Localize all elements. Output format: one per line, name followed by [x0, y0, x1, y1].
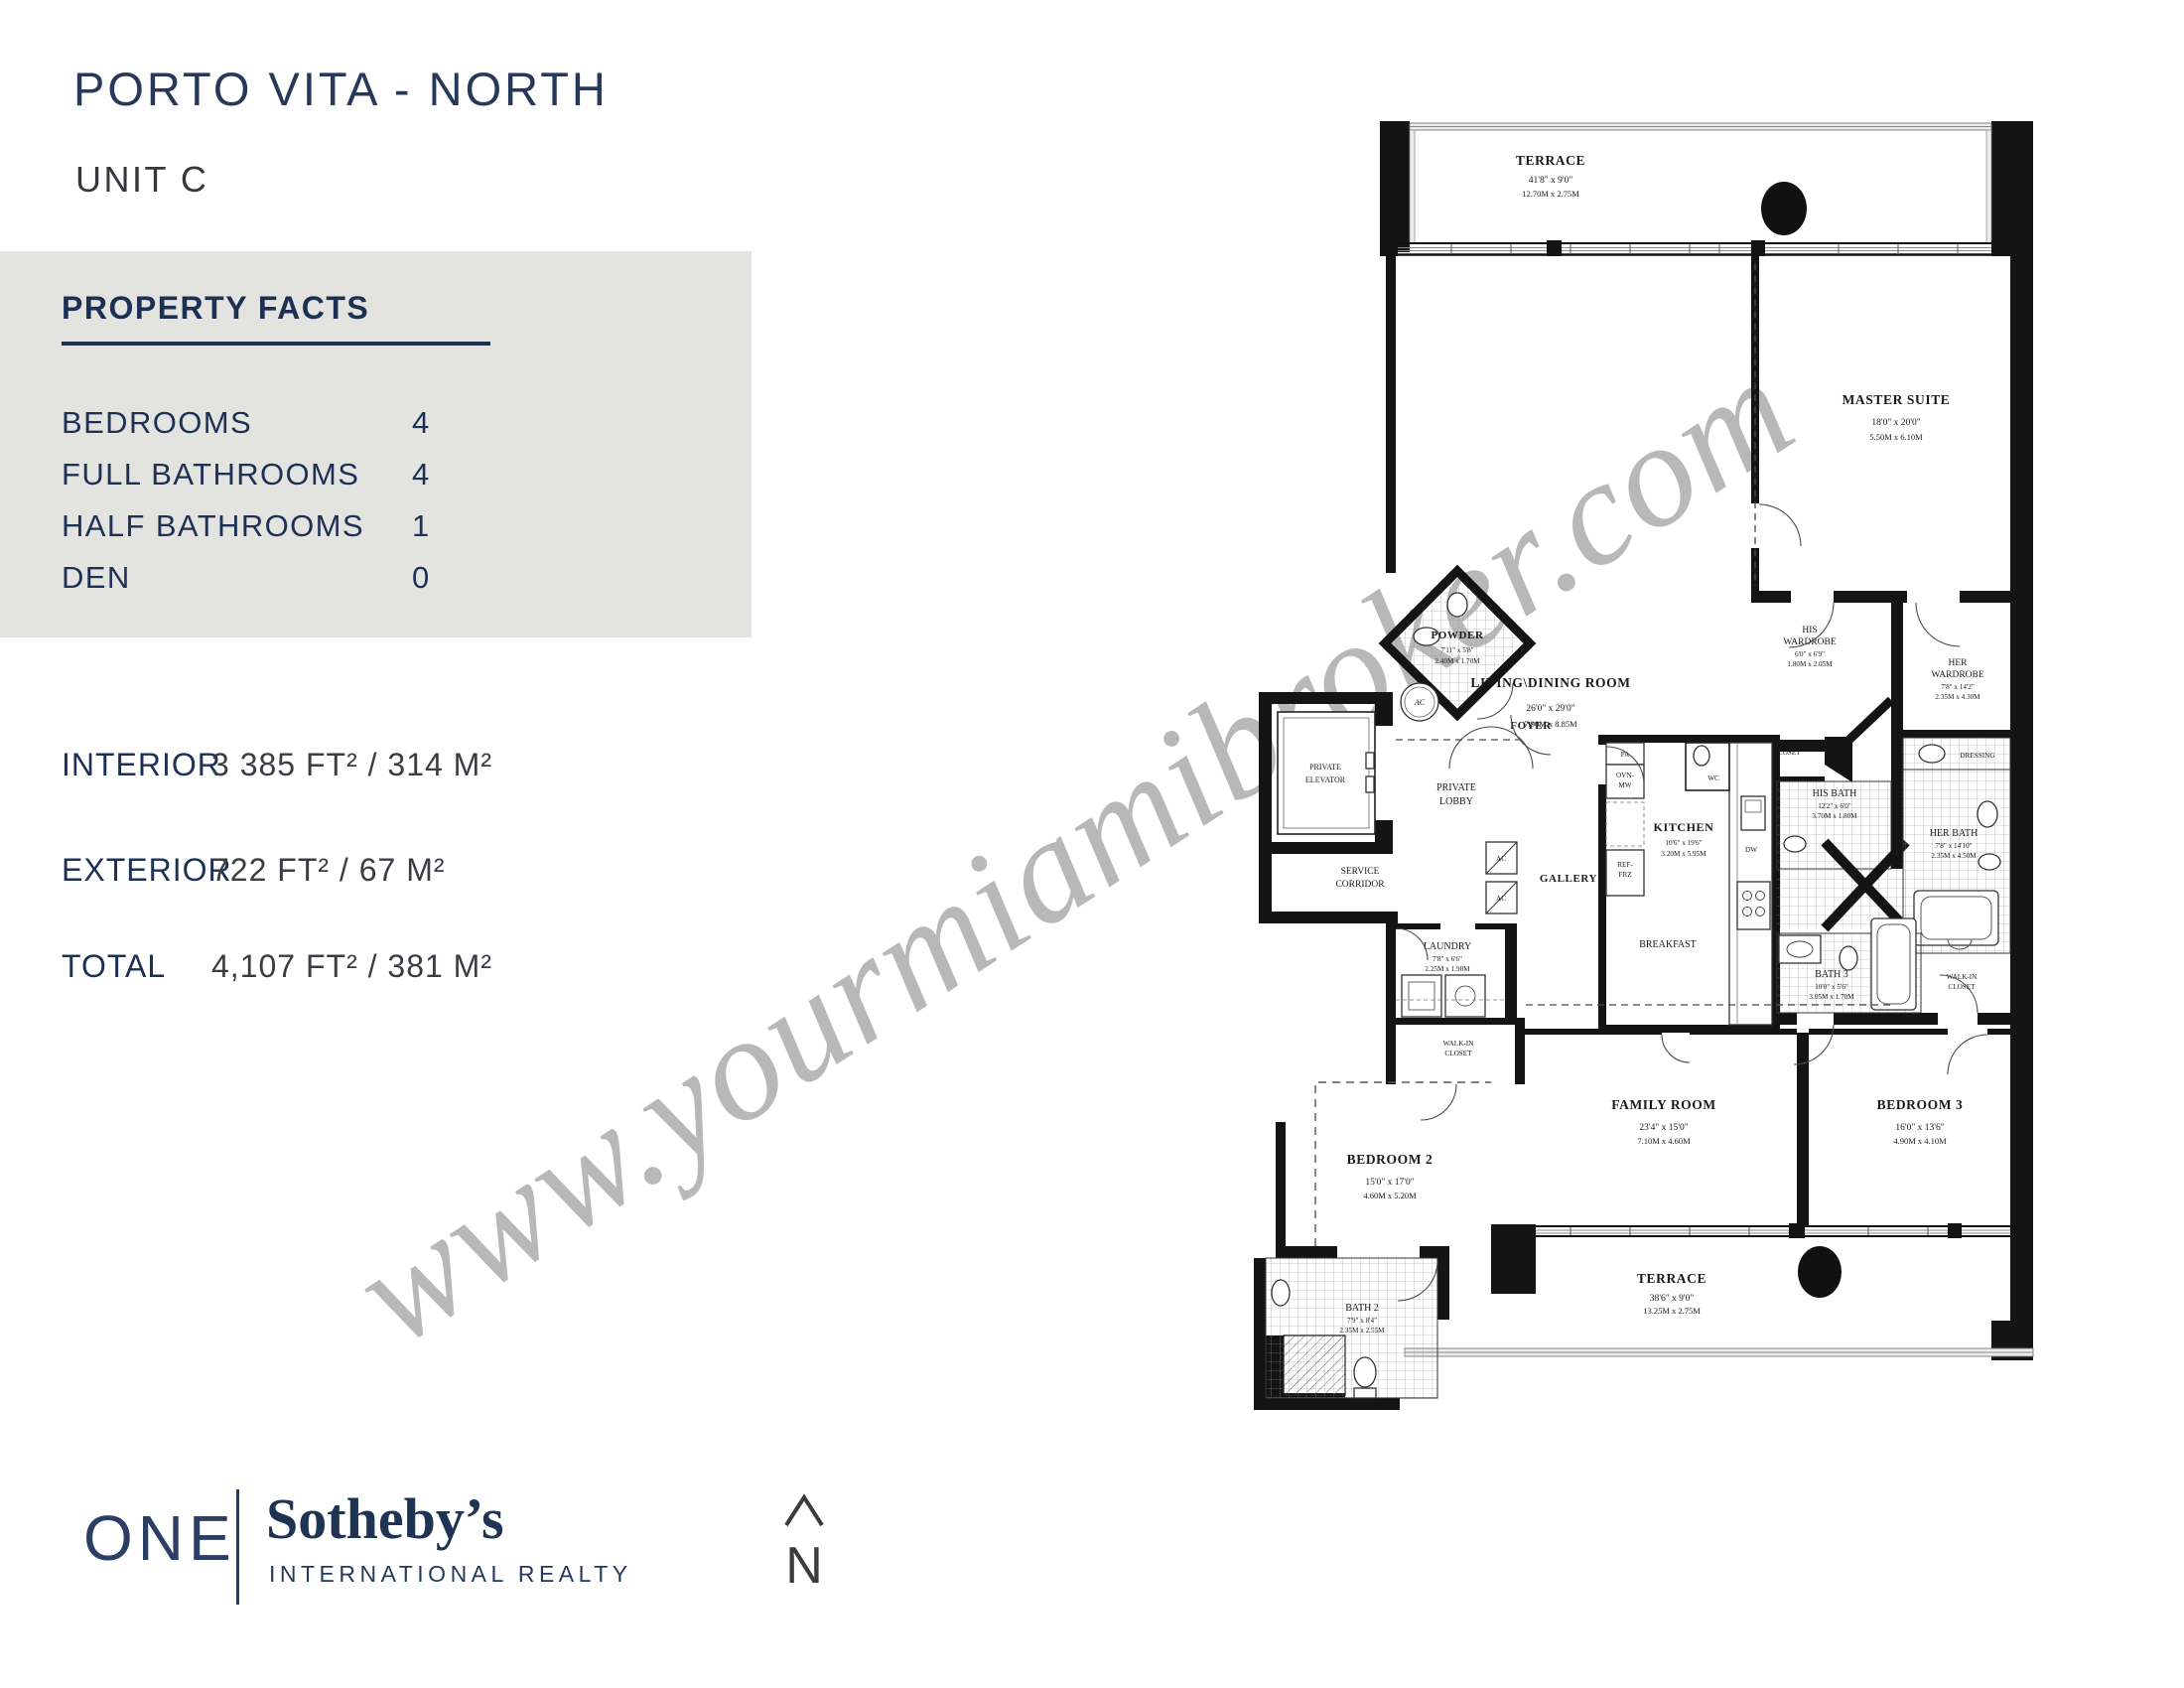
room-dims-ft: 38'6" x 9'0"	[1650, 1294, 1695, 1304]
ac-label: AC	[1414, 698, 1426, 707]
room-label-2: CLOSET	[1948, 983, 1976, 991]
room-dims-ft: 7'11" x 5'8"	[1440, 646, 1473, 654]
room-label: HER BATH	[1930, 828, 1979, 839]
area-label: EXTERIOR	[62, 852, 232, 888]
room-label: FAMILY ROOM	[1611, 1097, 1715, 1112]
dressing-strip: DRESSING	[1903, 738, 2010, 770]
sothebys-tagline: INTERNATIONAL REALTY	[269, 1561, 632, 1588]
room-dims-ft: 16'0" x 13'6"	[1895, 1123, 1944, 1133]
room-label-closet: CLOSET	[1773, 749, 1801, 757]
room-wc: WC	[1686, 743, 1729, 790]
area-row-exterior: EXTERIOR 722 FT² / 67 M²	[62, 852, 232, 889]
room-label-1: PRIVATE	[1309, 763, 1341, 772]
room-label: BATH 3	[1815, 969, 1848, 980]
fact-label: BEDROOMS	[62, 405, 252, 440]
room-dims-m: 2.35M x 4.50M	[1931, 852, 1977, 860]
room-dims-ft: 7'9" x 8'4"	[1347, 1317, 1377, 1325]
room-dims-m: 7.10M x 4.60M	[1637, 1136, 1691, 1146]
room-label: BEDROOM 2	[1347, 1152, 1433, 1167]
column	[1798, 1246, 1842, 1298]
window-band-bottom	[1536, 1223, 2010, 1238]
appliance-frz: FRZ	[1618, 871, 1631, 879]
area-value: 3 385 FT² / 314 M²	[211, 747, 492, 783]
room-label: LAUNDRY	[1424, 941, 1471, 952]
area-label: TOTAL	[62, 948, 166, 984]
room-label: POWDER	[1431, 630, 1484, 641]
room-label-gallery: GALLERY	[1540, 873, 1597, 885]
fact-value: 4	[412, 405, 431, 441]
room-bath-3: BATH 3 10'0" x 5'6" 3.05M x 1.70M	[1777, 918, 1921, 1013]
appliance-dw: DW	[1745, 846, 1757, 854]
room-laundry: LAUNDRY 7'8" x 6'6" 2.25M x 1.98M	[1396, 941, 1505, 1017]
room-dims-m: 13.25M x 2.75M	[1643, 1306, 1701, 1316]
room-dims-ft: 7'8" x 14'10"	[1935, 842, 1972, 850]
room-label-2: CLOSET	[1444, 1050, 1472, 1057]
room-walkin-closet-left: WALK-IN CLOSET	[1443, 1040, 1475, 1057]
room-dims-m: 2.35M x 2.55M	[1339, 1327, 1385, 1335]
room-dims-ft: 15'0" x 17'0"	[1365, 1178, 1414, 1188]
fact-row-half-bathrooms: HALF BATHROOMS 1	[62, 508, 617, 544]
fact-row-bedrooms: BEDROOMS 4	[62, 405, 617, 441]
area-row-interior: INTERIOR 3 385 FT² / 314 M²	[62, 747, 221, 783]
fact-label: DEN	[62, 560, 131, 595]
room-private-elevator: PRIVATE ELEVATOR	[1278, 712, 1375, 834]
one-logo-text: ONE	[83, 1501, 236, 1575]
column	[1761, 182, 1807, 235]
fact-value: 0	[412, 560, 431, 596]
room-label: TERRACE	[1637, 1271, 1706, 1286]
logo-divider	[236, 1489, 239, 1605]
north-arrow: N	[764, 1485, 844, 1605]
room-dims-m: 4.90M x 4.10M	[1893, 1136, 1947, 1146]
room-bedroom-3: BEDROOM 3 16'0" x 13'6" 4.90M x 4.10M	[1877, 1097, 1964, 1146]
room-dims-ft: 41'8" x 9'0"	[1529, 176, 1573, 186]
room-label-private-lobby-2: LOBBY	[1439, 796, 1473, 807]
room-dims-m: 3.20M x 5.95M	[1661, 850, 1706, 858]
north-letter: N	[785, 1537, 823, 1595]
sothebys-logo-text: Sotheby’s	[266, 1485, 504, 1552]
area-value: 722 FT² / 67 M²	[211, 852, 446, 889]
room-terrace-top: TERRACE 41'8" x 9'0" 12.70M x 2.75M	[1380, 121, 2033, 252]
area-row-total: TOTAL 4,107 FT² / 381 M²	[62, 948, 166, 985]
room-dims-ft: 18'0" x 20'0"	[1871, 418, 1920, 428]
room-label: BEDROOM 3	[1877, 1097, 1964, 1112]
room-label-2: WARDROBE	[1931, 670, 1984, 680]
room-dims-m: 7.90M x 8.85M	[1524, 719, 1577, 729]
page-title: PORTO VITA - NORTH	[73, 62, 609, 116]
appliance-ovn: OVN-	[1616, 772, 1635, 779]
ac-closets: AC AC	[1486, 842, 1517, 914]
floorplan-image: TERRACE 41'8" x 9'0" 12.70M x 2.75M	[1253, 119, 2037, 1440]
room-dims-ft: 26'0" x 29'0"	[1526, 704, 1574, 714]
room-dims-m: 4.60M x 5.20M	[1363, 1191, 1417, 1200]
room-bedroom-2: BEDROOM 2 15'0" x 17'0" 4.60M x 5.20M	[1315, 1082, 1491, 1246]
room-dims-ft: 12'2" x 6'0"	[1818, 802, 1851, 810]
room-dims-m: 3.70M x 1.80M	[1812, 812, 1857, 820]
room-label-2: ELEVATOR	[1305, 775, 1346, 784]
room-dims-m: 5.50M x 6.10M	[1869, 432, 1923, 442]
room-dims-ft: 7'8" x 6'6"	[1433, 955, 1462, 963]
fact-row-full-bathrooms: FULL BATHROOMS 4	[62, 457, 617, 492]
room-bath-2: BATH 2 7'9" x 8'4" 2.35M x 2.55M	[1266, 1258, 1437, 1398]
room-label: MASTER SUITE	[1843, 392, 1951, 407]
room-label-1: HER	[1949, 658, 1969, 668]
fact-value: 4	[412, 457, 431, 492]
fact-row-den: DEN 0	[62, 560, 617, 596]
property-facts-heading: PROPERTY FACTS	[62, 290, 369, 327]
room-dims-m: 2.35M x 4.30M	[1935, 693, 1980, 701]
room-dims-m: 3.05M x 1.70M	[1809, 993, 1854, 1001]
fact-label: HALF BATHROOMS	[62, 508, 364, 543]
room-dims-m: 2.25M x 1.98M	[1425, 965, 1470, 973]
north-chevron-icon	[786, 1497, 822, 1525]
room-label-dressing: DRESSING	[1960, 752, 1994, 760]
room-dims-m: 2.40M x 1.70M	[1434, 657, 1480, 665]
room-label-service-corridor-1: SERVICE	[1341, 867, 1380, 877]
room-label-breakfast: BREAKFAST	[1639, 939, 1697, 950]
room-dims-ft: 23'4" x 15'0"	[1639, 1123, 1688, 1133]
room-dims-ft: 6'0" x 6'9"	[1795, 650, 1825, 658]
room-label-service-corridor-2: CORRIDOR	[1335, 880, 1385, 890]
room-label: KITCHEN	[1654, 820, 1714, 834]
flyer-page: { "page": { "title": "PORTO VITA - NORTH…	[0, 0, 2184, 1688]
room-dims-ft: 10'6" x 19'6"	[1665, 839, 1702, 847]
room-dims-m: 12.70M x 2.75M	[1522, 189, 1579, 199]
appliance-ref: REF-	[1617, 861, 1633, 869]
room-label-private-lobby-1: PRIVATE	[1436, 782, 1476, 793]
room-label-1: WALK-IN	[1443, 1040, 1475, 1048]
area-label: INTERIOR	[62, 747, 221, 782]
appliance-mw: MW	[1618, 781, 1631, 789]
room-her-wardrobe: HER WARDROBE 7'8" x 14'2" 2.35M x 4.30M	[1931, 658, 1984, 701]
fact-label: FULL BATHROOMS	[62, 457, 359, 492]
room-label: LIVING\DINING ROOM	[1470, 675, 1630, 690]
ac-unit: AC	[1401, 683, 1438, 721]
ac-closet-label: AC	[1496, 895, 1506, 903]
window-band-top	[1380, 240, 2033, 256]
page-subtitle: UNIT C	[75, 159, 208, 201]
heading-underline	[62, 342, 490, 346]
area-value: 4,107 FT² / 381 M²	[211, 948, 492, 985]
room-dims-m: 1.80M x 2.05M	[1787, 660, 1833, 668]
ac-closet-label: AC	[1496, 855, 1506, 863]
room-label: WC	[1707, 774, 1719, 782]
room-label: BATH 2	[1345, 1303, 1379, 1314]
room-label: HIS BATH	[1813, 788, 1857, 799]
fact-value: 1	[412, 508, 431, 544]
room-label: TERRACE	[1516, 153, 1585, 168]
room-master-suite: MASTER SUITE 18'0" x 20'0" 5.50M x 6.10M	[1843, 392, 1951, 442]
room-dims-ft: 7'8" x 14'2"	[1941, 683, 1975, 691]
room-kitchen: PA OVN- MW REF- FRZ DW KITCHEN 10'6" x 1…	[1606, 743, 1772, 1025]
room-dims-ft: 10'0" x 5'6"	[1815, 983, 1848, 991]
room-her-bath: HER BATH 7'8" x 14'10" 2.35M x 4.50M	[1903, 770, 2010, 953]
room-label-1: HIS	[1802, 626, 1817, 635]
